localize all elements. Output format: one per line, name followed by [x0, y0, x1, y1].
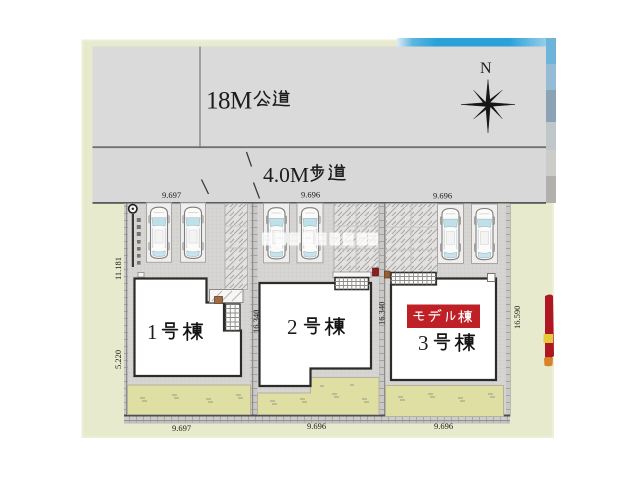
svg-text:16.340: 16.340: [377, 302, 387, 325]
svg-text:1: 1: [147, 320, 158, 344]
svg-text:3: 3: [418, 331, 429, 355]
svg-text:9.696: 9.696: [307, 421, 326, 431]
svg-text:16.340: 16.340: [251, 310, 261, 333]
svg-text:2: 2: [287, 315, 298, 339]
svg-text:9.696: 9.696: [301, 190, 320, 200]
svg-text:9.696: 9.696: [433, 191, 452, 201]
svg-text:9.697: 9.697: [162, 190, 181, 200]
svg-text:11.181: 11.181: [113, 257, 123, 280]
svg-text:9.696: 9.696: [434, 421, 453, 431]
svg-text:N: N: [480, 60, 492, 77]
svg-text:4.0M: 4.0M: [263, 163, 309, 187]
svg-text:18M: 18M: [206, 88, 252, 115]
svg-text:9.697: 9.697: [172, 423, 191, 433]
svg-text:5.220: 5.220: [113, 350, 123, 369]
svg-text:16.590: 16.590: [512, 306, 522, 329]
